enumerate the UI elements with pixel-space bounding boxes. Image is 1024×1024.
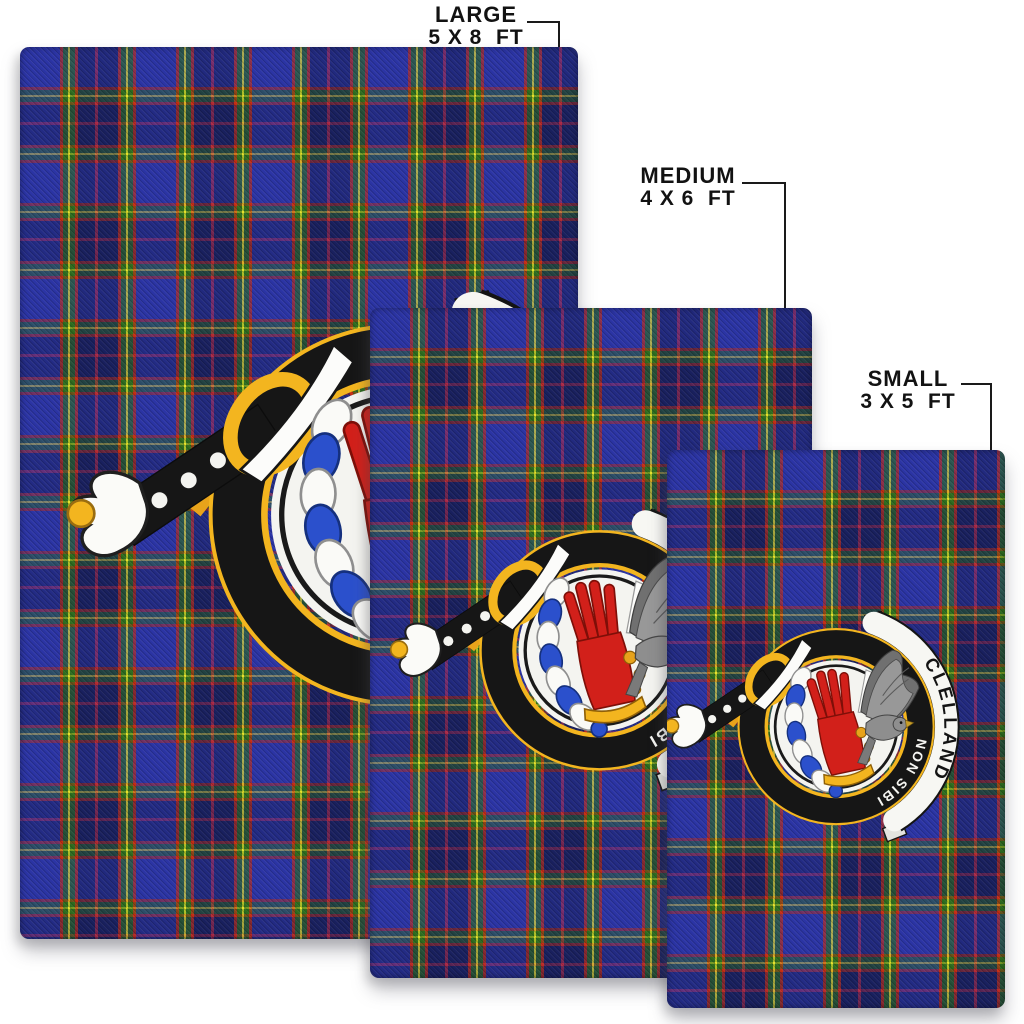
leader-line-medium (784, 182, 786, 309)
label-medium: MEDIUM 4 X 6 FT (613, 164, 763, 211)
leader-line-large (527, 21, 560, 23)
label-small-name: SMALL (833, 367, 983, 390)
label-medium-name: MEDIUM (613, 164, 763, 187)
leader-line-medium (742, 182, 786, 184)
leader-line-small (961, 383, 992, 385)
rug-small (667, 450, 1005, 1008)
clan-crest-badge (667, 602, 963, 854)
label-large: LARGE 5 X 8 FT (401, 3, 551, 50)
leader-line-small (990, 383, 992, 451)
leader-line-large (558, 21, 560, 49)
label-medium-dimensions: 4 X 6 FT (613, 187, 763, 211)
label-small-dimensions: 3 X 5 FT (833, 390, 983, 414)
label-small: SMALL 3 X 5 FT (833, 367, 983, 414)
product-image: NON SIBI CLELLAND (0, 0, 1024, 1024)
